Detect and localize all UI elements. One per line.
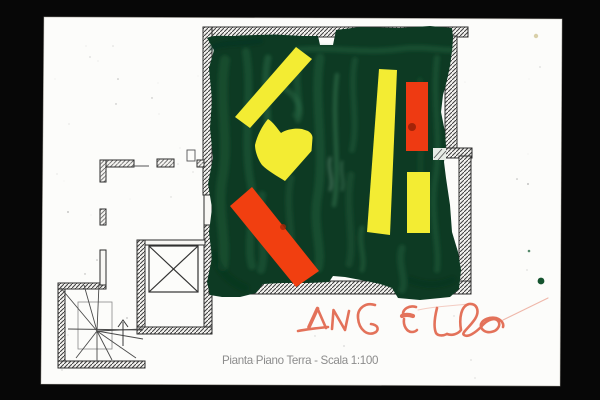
svg-text:Pianta Piano Terra - Scala 1:1: Pianta Piano Terra - Scala 1:100 xyxy=(222,354,378,367)
